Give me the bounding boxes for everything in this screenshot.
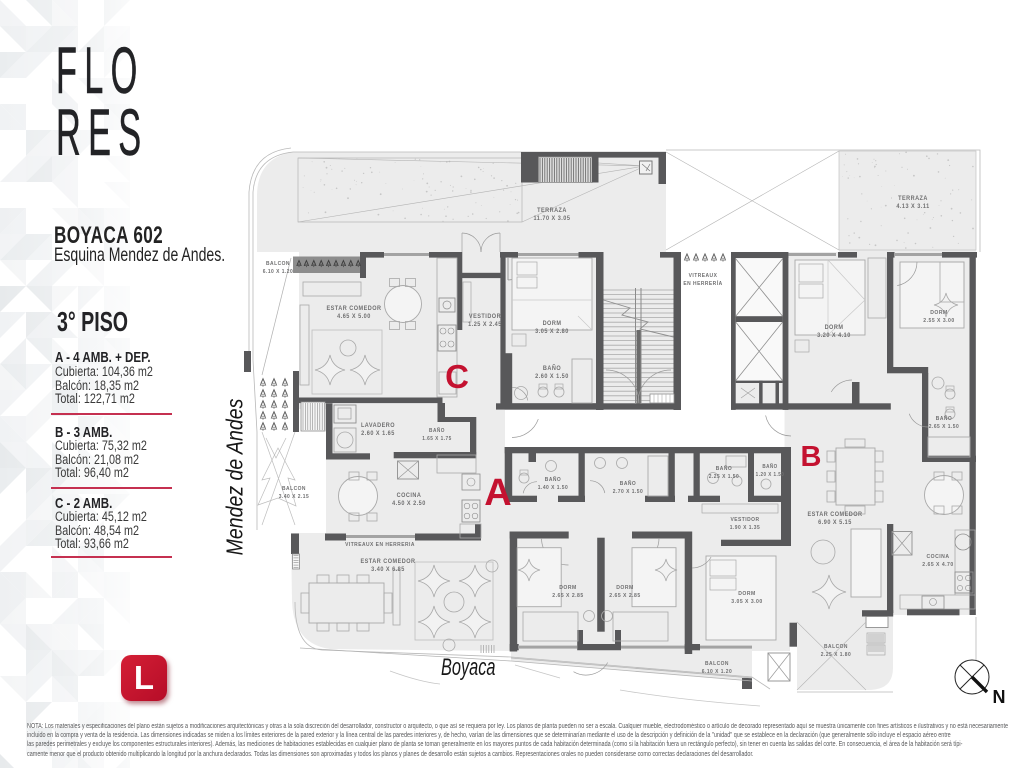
svg-text:VITREAUX EN HERRERIA: VITREAUX EN HERRERIA (345, 542, 415, 548)
svg-text:COCINA4.50 X 2.50: COCINA4.50 X 2.50 (392, 493, 426, 507)
svg-text:N: N (993, 687, 1006, 707)
svg-text:VITREAUXEN HERRERÍA: VITREAUXEN HERRERÍA (683, 273, 722, 287)
svg-text:BALCON2.25 X 1.80: BALCON2.25 X 1.80 (821, 644, 851, 658)
svg-text:BALCON6.10 X 1.20: BALCON6.10 X 1.20 (702, 661, 732, 675)
svg-text:C: C (445, 358, 469, 395)
svg-text:VESTIDOR1.25 X 2.45: VESTIDOR1.25 X 2.45 (468, 314, 502, 328)
svg-text:TERRAZA11.70 X 3.05: TERRAZA11.70 X 3.05 (534, 208, 571, 222)
svg-text:TERRAZA4.13 X 3.11: TERRAZA4.13 X 3.11 (896, 196, 929, 210)
svg-text:B: B (801, 441, 822, 473)
svg-text:BALCON3.40 X 2.15: BALCON3.40 X 2.15 (279, 486, 309, 500)
svg-text:COCINA2.65 X 4.70: COCINA2.65 X 4.70 (922, 554, 953, 568)
svg-text:LAVADERO2.60 X 1.65: LAVADERO2.60 X 1.65 (361, 423, 395, 437)
svg-text:VESTIDOR1.90 X 1.35: VESTIDOR1.90 X 1.35 (730, 517, 760, 531)
svg-text:BALCON6.10 X 1.20: BALCON6.10 X 1.20 (263, 261, 293, 275)
svg-text:A: A (484, 472, 511, 514)
